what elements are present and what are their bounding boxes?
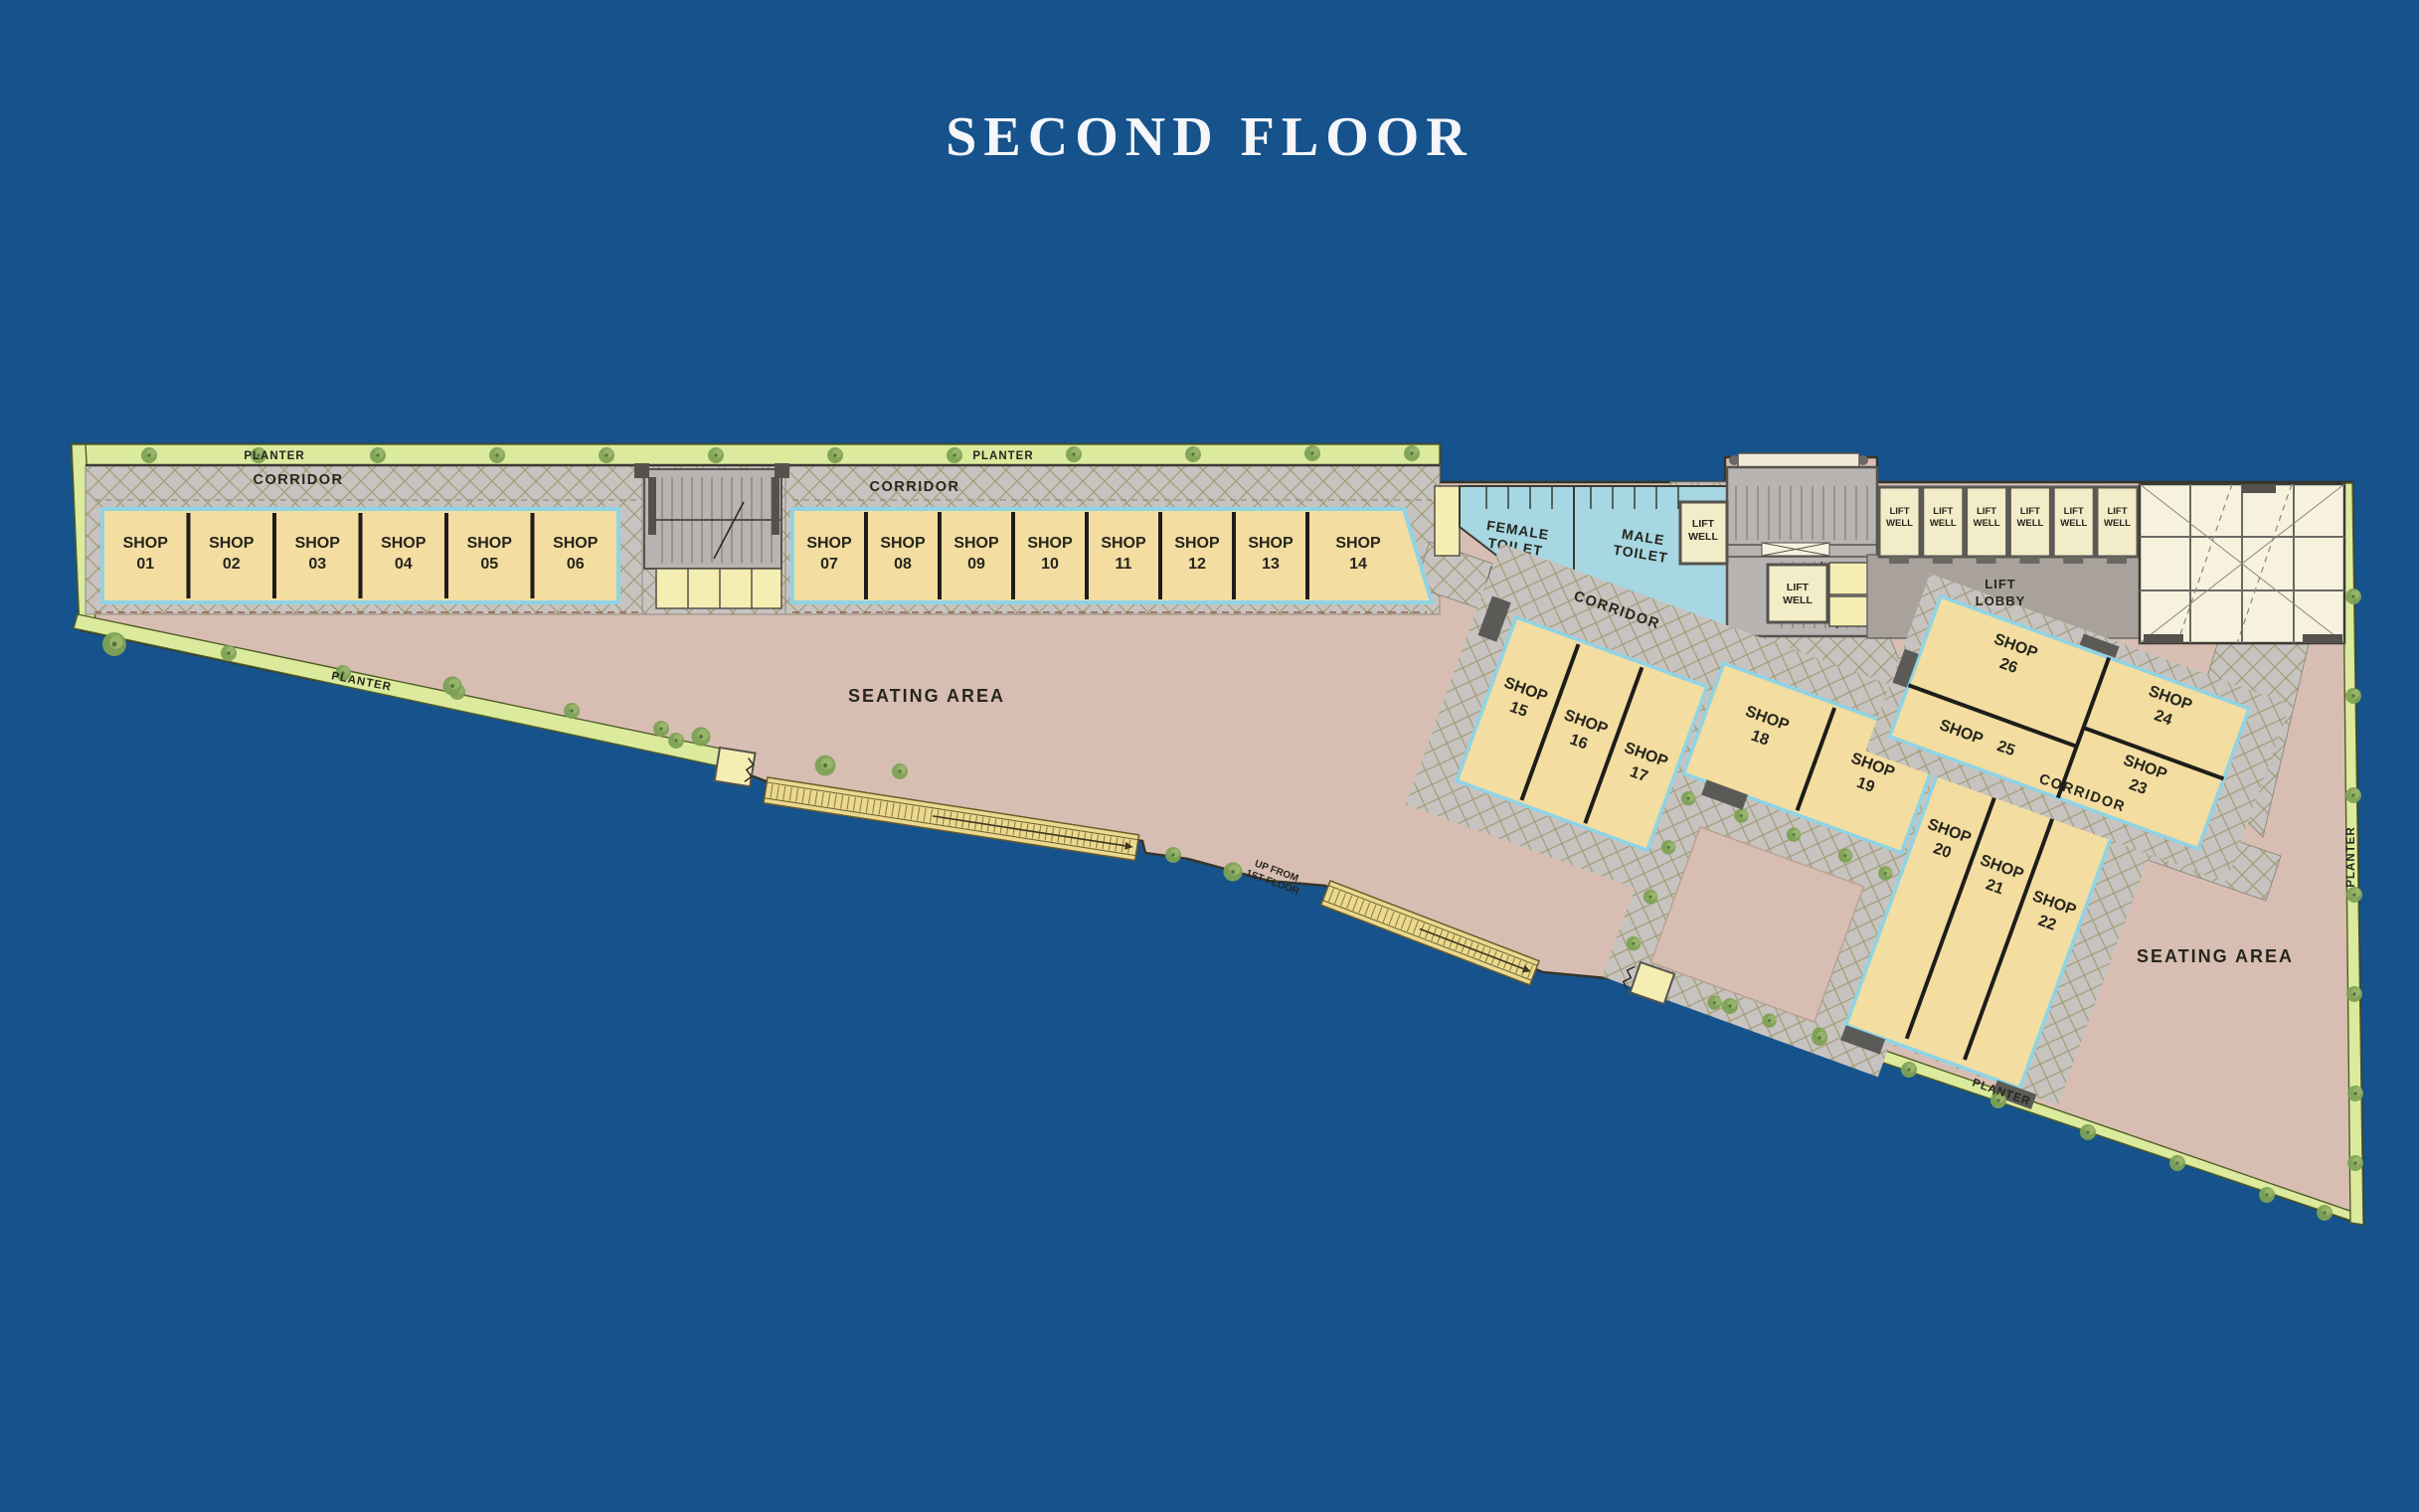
tree-top — [376, 449, 385, 458]
lift-well-sill — [2063, 557, 2083, 564]
shop-block-07-14 — [792, 509, 1432, 602]
tree-top — [109, 635, 123, 649]
lift-well-label-1: LIFT — [1889, 506, 1909, 517]
toilet-anteroom — [1435, 486, 1460, 556]
shop-label-number: 11 — [1116, 556, 1132, 573]
shop-label-word: SHOP — [1101, 535, 1146, 552]
shop-label-word: SHOP — [1335, 535, 1381, 552]
label-seating-left: SEATING AREA — [848, 686, 1005, 706]
label-lift-left-1: LIFT — [1692, 518, 1715, 530]
tree-top — [2353, 1157, 2362, 1166]
lift-well-label-1: LIFT — [2064, 506, 2084, 517]
tree-core — [833, 453, 836, 456]
lift-well-label-1: LIFT — [2020, 506, 2040, 517]
atrium — [2140, 484, 2344, 643]
shop-label-number: 03 — [308, 556, 326, 573]
tree-core — [2351, 793, 2354, 796]
tree-core — [1191, 452, 1194, 455]
tree-top — [495, 449, 504, 458]
tree-top — [449, 679, 460, 690]
post-left — [634, 463, 649, 478]
shop-label-number: 08 — [894, 556, 912, 573]
shop-label-word: SHOP — [381, 535, 427, 552]
tree-top — [1171, 849, 1180, 858]
tree-core — [823, 763, 827, 767]
tree-top — [698, 730, 709, 741]
tree-core — [952, 453, 955, 456]
tree-core — [898, 769, 901, 772]
shop-label-word: SHOP — [1027, 535, 1073, 552]
lift-well-label-1: LIFT — [1933, 506, 1953, 517]
shop-label-number: 05 — [480, 556, 498, 573]
tree-top — [2352, 988, 2361, 997]
tree-core — [1310, 451, 1313, 454]
lift-well-label-2: WELL — [1930, 518, 1957, 529]
label-lift-lower-2: WELL — [1783, 594, 1813, 606]
tree-top — [1230, 865, 1241, 876]
tree-core — [1728, 1004, 1731, 1007]
tree-core — [2086, 1130, 2089, 1133]
shop-label-number: 10 — [1041, 556, 1059, 573]
tree-core — [699, 735, 703, 739]
tree-top — [227, 647, 236, 656]
lift-well-sill — [2107, 557, 2127, 564]
tree-core — [2353, 1161, 2356, 1164]
shop-label-word: SHOP — [953, 535, 999, 552]
label-planter-right-text: PLANTER — [2345, 826, 2357, 887]
shop-label-number: 13 — [1262, 556, 1280, 573]
tree-top — [2351, 590, 2360, 599]
stair-left-rail-b — [772, 477, 779, 535]
lift-well-sill — [1977, 557, 1996, 564]
post-right — [775, 463, 789, 478]
lift-well-label-1: LIFT — [1977, 506, 1996, 517]
atrium-tick-2 — [2144, 634, 2183, 643]
stair-left-rail-a — [648, 477, 656, 535]
label-seating-right: SEATING AREA — [2137, 946, 2294, 966]
landing1-box — [715, 748, 756, 786]
label-planter-top-left: PLANTER — [244, 450, 304, 462]
tree-core — [1410, 451, 1413, 454]
lift-well-sill — [1889, 557, 1909, 564]
shop-label-number: 07 — [820, 556, 838, 573]
tree-core — [2352, 992, 2355, 995]
lift-well-sill — [1933, 557, 1953, 564]
shop-label-word: SHOP — [553, 535, 599, 552]
tree-top — [570, 705, 579, 714]
tree-top — [898, 765, 907, 774]
tree-core — [2351, 694, 2354, 697]
shop-label-number: 14 — [1349, 556, 1367, 573]
tree-core — [1231, 870, 1235, 874]
tree-top — [1072, 448, 1081, 457]
atrium-tick-3 — [2303, 634, 2342, 643]
lift-well-label-1: LIFT — [2107, 506, 2127, 517]
shop-label-number: 09 — [967, 556, 985, 573]
stair-right-landing — [1738, 453, 1859, 467]
tree-core — [659, 727, 662, 730]
label-lift-lobby-2: LOBBY — [1976, 593, 2026, 608]
tree-top — [2265, 1189, 2274, 1198]
tree-core — [714, 453, 717, 456]
shop-label-word: SHOP — [295, 535, 341, 552]
stair-post-b — [1858, 455, 1868, 465]
shop-label-word: SHOP — [123, 535, 169, 552]
page: SECOND FLOOR — [0, 0, 2419, 1512]
lift-well-lower-box — [1768, 565, 1827, 622]
tree-top — [1907, 1064, 1916, 1073]
tree-core — [1996, 1098, 1999, 1101]
tree-top — [2323, 1207, 2332, 1216]
shop-label-word: SHOP — [1248, 535, 1294, 552]
shop-label-number: 12 — [1188, 556, 1206, 573]
label-planter-top-mid: PLANTER — [972, 450, 1033, 462]
tree-top — [2175, 1157, 2184, 1166]
label-lift-lobby-1: LIFT — [1985, 577, 2015, 591]
shop-label-number: 01 — [136, 556, 154, 573]
label-planter-right: PLANTER — [2345, 826, 2357, 887]
tree-core — [1171, 853, 1174, 856]
shop-label-number: 04 — [395, 556, 413, 573]
lift-well-label-2: WELL — [1886, 518, 1913, 529]
atrium-tick-1 — [2242, 484, 2276, 493]
tree-core — [2353, 1092, 2356, 1094]
floor-plan: SHOP01SHOP02SHOP03SHOP04SHOP05SHOP06 SHO… — [0, 0, 2419, 1512]
tree-top — [2353, 1088, 2362, 1096]
shop-label-number: 02 — [223, 556, 241, 573]
tree-core — [450, 684, 454, 688]
label-corridor-mid: CORRIDOR — [870, 479, 960, 495]
tree-top — [1817, 1032, 1826, 1041]
shop-label-word: SHOP — [880, 535, 926, 552]
label-lift-left-2: WELL — [1688, 531, 1718, 543]
tree-top — [674, 735, 683, 744]
tree-core — [2352, 893, 2355, 896]
tree-core — [112, 642, 117, 647]
tree-top — [2352, 889, 2361, 898]
lift-well-sill — [2019, 557, 2039, 564]
tree-core — [570, 709, 573, 712]
lift-well-label-2: WELL — [2060, 518, 2087, 529]
tree-core — [2323, 1211, 2326, 1214]
lift-well-label-2: WELL — [2104, 518, 2131, 529]
tree-core — [1817, 1036, 1820, 1039]
shop-label-word: SHOP — [467, 535, 513, 552]
tree-top — [659, 723, 668, 732]
stair-post-a — [1729, 455, 1739, 465]
tree-top — [1310, 447, 1319, 456]
tree-top — [605, 449, 613, 458]
shop-label-word: SHOP — [1174, 535, 1220, 552]
shop-label-word: SHOP — [806, 535, 852, 552]
stair-left-lockers — [656, 569, 781, 608]
tree-core — [2265, 1193, 2268, 1196]
tree-core — [2351, 594, 2354, 597]
tree-top — [147, 449, 156, 458]
label-corridor-left: CORRIDOR — [254, 472, 344, 488]
tree-core — [376, 453, 379, 456]
lift-well-row: LIFTWELLLIFTWELLLIFTWELLLIFTWELLLIFTWELL… — [1879, 487, 2138, 564]
label-lift-lower-1: LIFT — [1787, 582, 1810, 593]
tree-top — [2086, 1126, 2095, 1135]
tree-core — [674, 739, 677, 742]
tree-core — [2175, 1161, 2178, 1164]
tree-top — [833, 449, 842, 458]
lift-well-label-2: WELL — [1974, 518, 2000, 529]
tree-top — [1191, 448, 1200, 457]
tree-top — [821, 757, 833, 769]
tree-top — [2351, 789, 2360, 798]
tree-core — [605, 453, 607, 456]
shop-label-number: 06 — [567, 556, 585, 573]
tree-top — [714, 449, 723, 458]
tree-core — [495, 453, 498, 456]
tree-top — [2351, 690, 2360, 699]
tree-top — [952, 449, 961, 458]
escalator-landing-1 — [715, 748, 756, 786]
staircase-left — [634, 463, 789, 608]
tree-core — [147, 453, 150, 456]
tree-core — [1072, 452, 1075, 455]
tree-top — [1410, 447, 1419, 456]
shop-label-word: SHOP — [209, 535, 255, 552]
tree-core — [1907, 1068, 1910, 1071]
tree-top — [1728, 1000, 1737, 1009]
tree-core — [227, 651, 230, 654]
lift-well-label-2: WELL — [2016, 518, 2043, 529]
